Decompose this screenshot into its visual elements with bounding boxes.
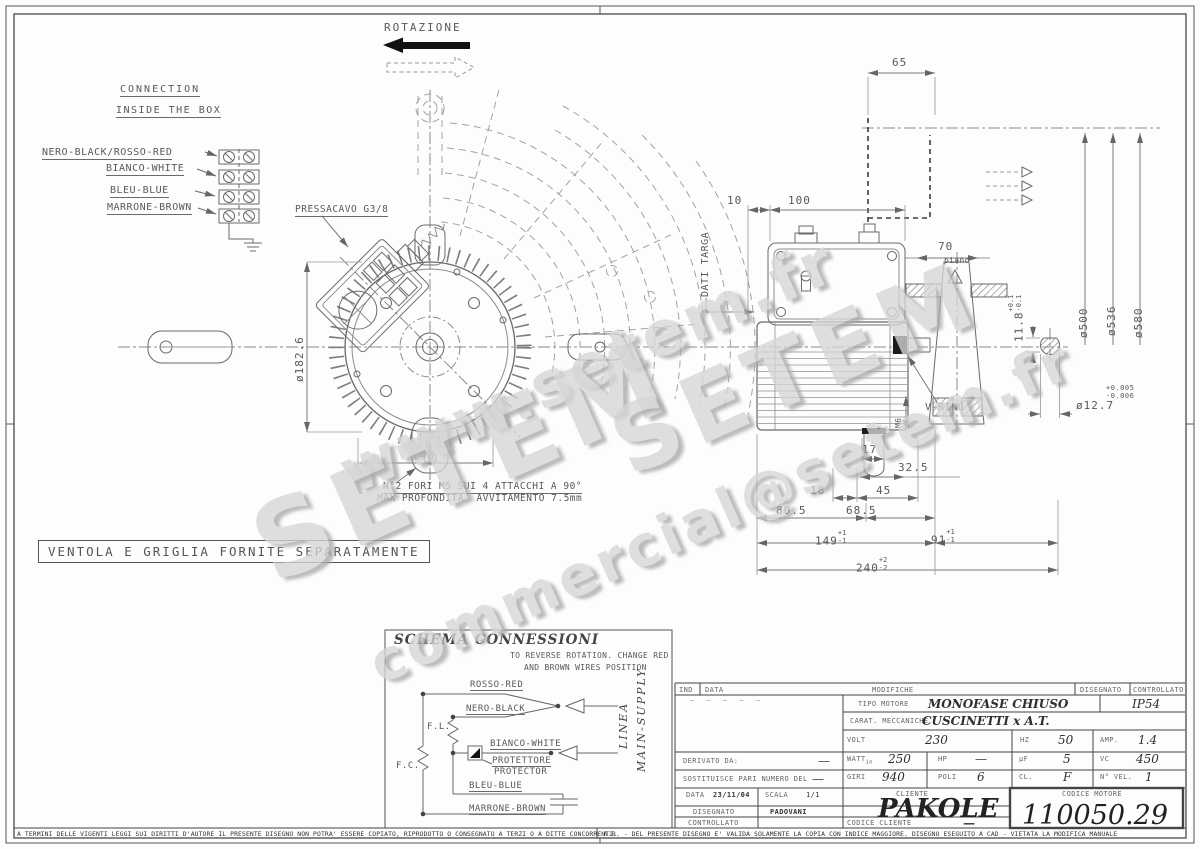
tb-disegnato-value: PADOVANI — [770, 808, 807, 816]
dim-32-5: 32.5 — [898, 462, 929, 475]
tb-poli-label: POLI — [938, 773, 956, 781]
tb-data-value: 23/11/04 — [713, 791, 750, 799]
tb-scala-value: 1/1 — [806, 791, 820, 799]
tb-carat-label: CARAT. MECCANICHE — [850, 717, 928, 725]
schema-title: SCHEMA CONNESSIONI — [394, 632, 599, 648]
schema-protector-label: PROTECTOR — [494, 767, 547, 777]
footer-legal-right: N.B. - DEL PRESENTE DISEGNO E' VALIDA SO… — [604, 830, 1117, 838]
dim-240: 240+2-2 — [856, 557, 887, 575]
tb-scala-label: SCALA — [765, 791, 788, 799]
front-width-dim: 146 — [412, 450, 435, 463]
dia-12-7-tolerance: +0.005-0.006 — [1106, 385, 1134, 400]
dim-80-5: 80.5 — [776, 505, 807, 518]
schema-marrone-label: MARRONE-BROWN — [469, 804, 546, 815]
dim-11-8-tolerance: +0.1-0.1 — [1008, 295, 1023, 312]
wire-label-bleu: BLEU-BLUE — [110, 185, 169, 198]
tb-volt-value: 230 — [925, 733, 948, 747]
v-ring-label: V-RING — [925, 402, 964, 414]
rotation-label: ROTAZIONE — [384, 22, 462, 35]
tb-derivato-value: — — [818, 754, 830, 768]
tb-amp-value: 1.4 — [1138, 733, 1157, 747]
footer-legal-left: A TERMINI DELLE VIGENTI LEGGI SUI DIRITT… — [17, 830, 617, 838]
tb-controllato-header: CONTROLLATO — [1133, 686, 1184, 694]
connection-title-line1: CONNECTION — [120, 84, 200, 97]
schema-protettore-label: PROTETTORE — [492, 756, 551, 767]
schema-fl-label: F.L. — [427, 722, 451, 732]
dim-11-8-value: 11.8 — [1013, 312, 1026, 343]
dia-500: ø500 — [1078, 308, 1091, 339]
tb-modifiche-header: MODIFICHE — [872, 686, 914, 694]
tb-carat-value: CUSCINETTI x A.T. — [922, 714, 1050, 728]
dim-17: 17 — [862, 444, 877, 457]
dim-10: 10 — [727, 195, 742, 208]
schema-fc-label: F.C. — [396, 761, 420, 771]
schema-bianco-label: BIANCO-WHITE — [490, 739, 561, 750]
tb-vc-value: 450 — [1136, 752, 1159, 766]
tb-vc-label: VC — [1100, 755, 1109, 763]
tb-nvel-value: 1 — [1145, 770, 1153, 784]
dim-100: 100 — [788, 195, 811, 208]
tb-ind-header: IND — [679, 686, 693, 694]
schema-note-line2: AND BROWN WIRES POSITION — [524, 663, 647, 672]
tb-data-label: DATA — [686, 791, 704, 799]
tb-cl-label: CL. — [1019, 773, 1033, 781]
tb-disegnato-header: DISEGNATO — [1080, 686, 1122, 694]
tb-giri-value: 940 — [882, 770, 905, 784]
dia-536: ø536 — [1106, 306, 1119, 337]
tb-codice-cliente-value: — — [963, 816, 975, 830]
piano-label: piano — [944, 256, 970, 265]
tb-tipo-motore-label: TIPO MOTORE — [858, 700, 909, 708]
tb-ip-value: IP54 — [1132, 697, 1160, 711]
schema-note-line1: TO REVERSE ROTATION. CHANGE RED — [510, 651, 669, 660]
dati-targa-label: DATI TARGA — [700, 232, 712, 297]
tb-cl-value: F — [1063, 770, 1071, 784]
tb-watt-label: WATTin — [847, 755, 873, 765]
tb-uf-value: 5 — [1063, 752, 1071, 766]
tb-revision-dashes: — — — — — — [690, 696, 764, 704]
tb-hp-label: HP — [938, 755, 947, 763]
dim-149: 149+1-1 — [815, 530, 846, 548]
tb-uf-label: µF — [1019, 755, 1028, 763]
tb-amp-label: AMP. — [1100, 736, 1118, 744]
wire-label-marrone: MARRONE-BROWN — [107, 202, 192, 215]
tb-codice-motore-label: CODICE MOTORE — [1062, 790, 1122, 798]
tb-hz-value: 50 — [1058, 733, 1073, 747]
schema-main-supply-label: MAIN-SUPPLY — [636, 668, 649, 772]
tb-disegnato-label: DISEGNATO — [693, 808, 735, 816]
hole-note-line2: MAX PROFONDITA' AVVITAMENTO 7.5mm — [377, 494, 582, 505]
drawing-sheet: ROTAZIONE CONNECTION INSIDE THE BOX NERO… — [0, 0, 1200, 849]
tb-tipo-motore-value: MONOFASE CHIUSO — [928, 697, 1068, 711]
tb-derivato-label: DERIVATO DA: — [683, 757, 738, 765]
wire-label-bianco: BIANCO-WHITE — [106, 163, 184, 176]
tb-nvel-label: N° VEL. — [1100, 773, 1132, 781]
dim-45: 45 — [876, 485, 891, 498]
dim-65: 65 — [892, 57, 907, 70]
wire-label-nero-rosso: NERO-BLACK/ROSSO-RED — [42, 147, 172, 160]
dim-68-5: 68.5 — [846, 505, 877, 518]
schema-rosso-label: ROSSO-RED — [470, 680, 523, 691]
tb-sostituisce-label: SOSTITUISCE PARI NUMERO DEL — [683, 775, 808, 783]
tb-data-header: DATA — [705, 686, 723, 694]
dim-70: 70 — [938, 241, 953, 254]
tb-controllato-label: CONTROLLATO — [688, 819, 739, 827]
side-view-dimensions — [706, 73, 1140, 575]
dia-580: ø580 — [1133, 308, 1146, 339]
separate-supply-note: VENTOLA E GRIGLIA FORNITE SEPARATAMENTE — [38, 540, 430, 563]
tb-giri-label: GIRI — [847, 773, 865, 781]
tb-watt-value: 250 — [888, 752, 911, 766]
schema-nero-label: NERO-BLACK — [466, 704, 525, 715]
rotation-arrows — [383, 38, 474, 79]
tb-sostituisce-value: — — [812, 772, 824, 786]
dim-11-8: 11.8+0.1-0.1 — [1008, 295, 1026, 342]
dim-18: 18 — [810, 485, 825, 498]
tb-volt-label: VOLT — [847, 736, 865, 744]
front-diameter-dim: ø182.6 — [294, 336, 307, 382]
terminal-block — [195, 149, 262, 251]
dim-91: 91+1-1 — [931, 529, 955, 547]
schema-linea-label: LINEA — [618, 702, 631, 749]
tb-poli-value: 6 — [977, 770, 985, 784]
connection-title-line2: INSIDE THE BOX — [116, 105, 221, 118]
schema-bleu-label: BLEU-BLUE — [469, 781, 522, 792]
m6-label: M6 — [894, 418, 903, 428]
tb-hz-label: HZ — [1020, 736, 1029, 744]
pressacavo-label: PRESSACAVO G3/8 — [295, 205, 388, 217]
tb-codice-cliente-label: CODICE CLIENTE — [847, 819, 912, 827]
dia-12-7: ø12.7 — [1076, 400, 1114, 413]
tb-hp-value: — — [975, 752, 987, 766]
tb-codice-motore-value: 110050.29 — [1022, 800, 1168, 831]
